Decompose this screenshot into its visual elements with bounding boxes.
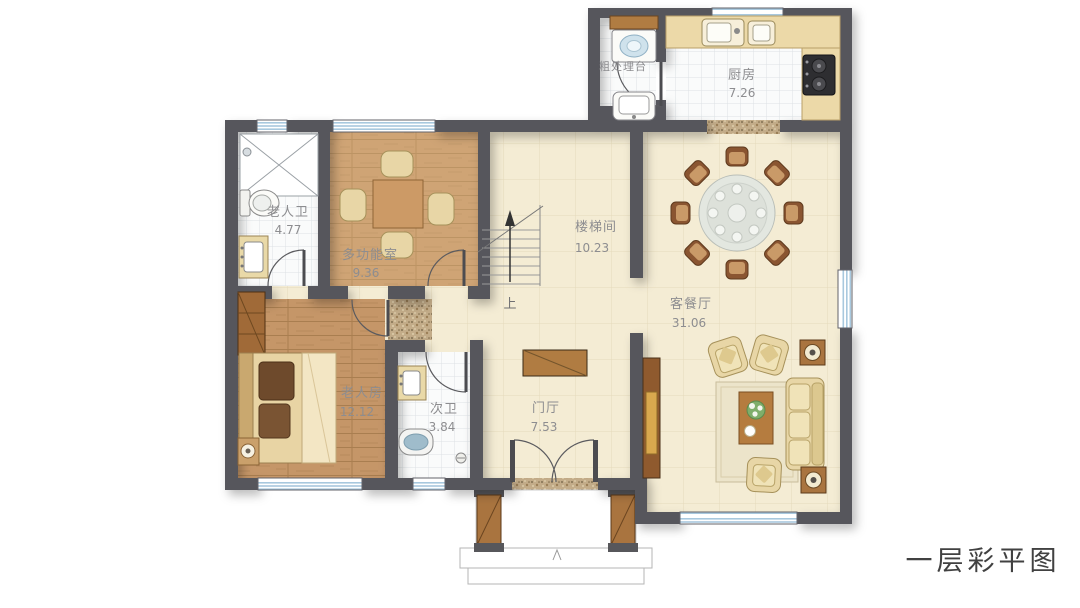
room-label-kitchen: 厨房 xyxy=(728,67,756,83)
window xyxy=(838,270,852,328)
faucet-icon xyxy=(241,256,244,259)
room-label-elder-bedroom: 老人房 xyxy=(341,385,383,401)
shower-head-icon xyxy=(243,148,251,156)
window xyxy=(680,512,797,524)
sink-basin xyxy=(619,96,649,114)
room-label-elder-bath: 老人卫 xyxy=(267,205,309,220)
window xyxy=(258,478,362,490)
room-area-stairwell: 10.23 xyxy=(575,241,609,255)
entry-step-2 xyxy=(468,568,644,584)
room-label-multi-room: 多功能室 xyxy=(342,247,398,263)
burner-center xyxy=(817,82,821,86)
table-centerpiece xyxy=(728,204,746,222)
stove-knob xyxy=(806,73,809,76)
room-area-second-bath: 3.84 xyxy=(429,420,456,434)
vanity-basin xyxy=(244,242,263,272)
washer-drum-inner xyxy=(627,41,641,52)
room-area-living-dining: 31.06 xyxy=(672,316,706,330)
room-label-prep: 粗处理台 xyxy=(599,59,647,73)
faucet-icon xyxy=(734,28,740,34)
sofa xyxy=(786,378,824,470)
stove-knob xyxy=(806,85,809,88)
porch-cap xyxy=(474,543,504,552)
room-label-stairwell: 楼梯间 xyxy=(575,220,617,235)
room-area-kitchen: 7.26 xyxy=(729,86,756,100)
burner-center xyxy=(817,64,821,68)
pillow xyxy=(259,362,294,400)
entry-porch xyxy=(460,488,652,584)
stove-knob xyxy=(806,61,809,64)
pillow xyxy=(259,404,290,438)
window xyxy=(257,120,287,132)
porch-cap xyxy=(608,543,638,552)
room-label-second-bath: 次卫 xyxy=(430,401,458,417)
door-leaf xyxy=(593,440,598,482)
dish-decor xyxy=(745,426,756,437)
threshold-kitchen xyxy=(707,120,780,134)
room-area-foyer: 7.53 xyxy=(531,420,558,434)
vanity-basin xyxy=(403,371,420,395)
faucet-icon xyxy=(241,265,244,268)
room-area-elder-bath: 4.77 xyxy=(275,223,302,237)
side-table xyxy=(801,467,826,493)
bathtub-basin xyxy=(404,434,428,450)
window xyxy=(413,478,445,490)
prep-shelf xyxy=(610,16,658,29)
sink-basin xyxy=(753,25,770,41)
chair xyxy=(428,193,454,225)
sink-basin xyxy=(707,23,731,42)
chair xyxy=(381,151,413,177)
side-table xyxy=(800,340,825,365)
entrance-mat xyxy=(512,478,598,491)
door-leaf xyxy=(510,440,515,482)
room-label-living-dining: 客餐厅 xyxy=(670,296,712,312)
plan-title: 一层彩平图 xyxy=(906,546,1061,577)
armchair xyxy=(746,457,782,493)
faucet-icon xyxy=(241,247,244,250)
sofa-set xyxy=(706,333,826,493)
tv-cabinet-panel xyxy=(646,392,657,454)
room-area-multi-room: 9.36 xyxy=(353,266,380,280)
stair-up-label: 上 xyxy=(503,297,516,312)
floor-plan-page: 粗处理台 厨房 7.26 老人卫 4.77 多功能室 9.36 楼梯间 10.2… xyxy=(0,0,1080,608)
chair xyxy=(340,189,366,221)
window xyxy=(333,120,435,132)
faucet-icon xyxy=(632,115,636,119)
square-table xyxy=(373,180,423,228)
threshold-bath-niche xyxy=(388,299,432,340)
floor-plan-canvas: 粗处理台 厨房 7.26 老人卫 4.77 多功能室 9.36 楼梯间 10.2… xyxy=(0,0,1080,608)
room-area-elder-bedroom: 12.12 xyxy=(340,405,374,419)
room-label-foyer: 门厅 xyxy=(532,401,560,416)
